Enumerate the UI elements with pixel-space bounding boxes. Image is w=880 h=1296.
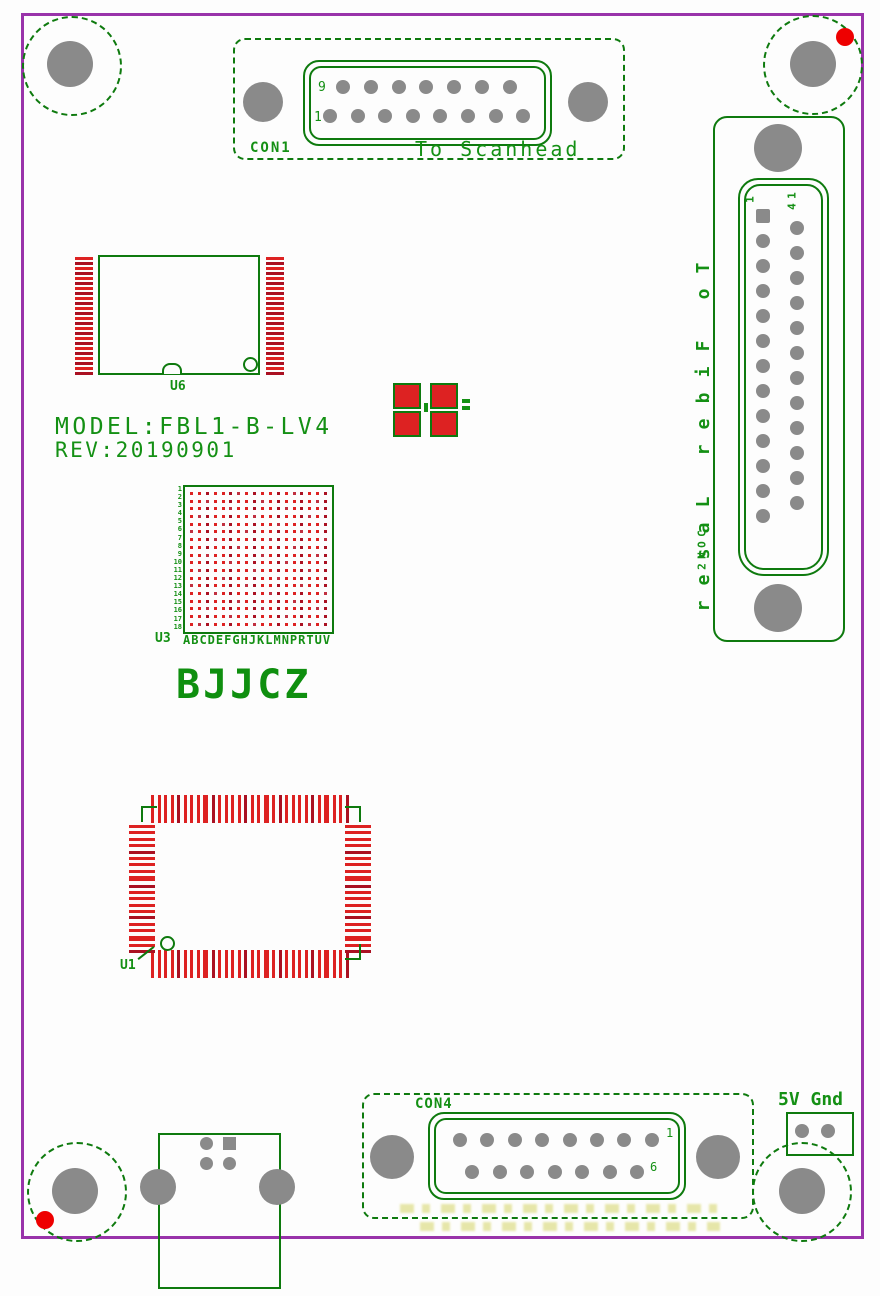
u1-pads-top	[151, 795, 349, 823]
pin-2	[756, 234, 770, 248]
u6pad-10	[266, 302, 284, 305]
ball-20	[198, 500, 201, 503]
u6-pads-right	[266, 257, 284, 375]
pin-3	[508, 1133, 522, 1147]
con2-pin-column-14	[790, 221, 804, 510]
ball-263	[269, 600, 272, 603]
ball-50	[293, 507, 296, 510]
ball-26	[245, 500, 248, 503]
usb-signal-pad	[200, 1137, 213, 1150]
ball-219	[206, 584, 209, 587]
ball-305	[316, 615, 319, 618]
pin-10	[756, 434, 770, 448]
con2-mount-hole-top	[754, 124, 802, 172]
ball-109	[190, 538, 193, 541]
con2-ref-label: CON2	[696, 528, 708, 572]
ball-307	[190, 623, 193, 626]
ball-317	[269, 623, 272, 626]
ball-82	[261, 523, 264, 526]
ball-17	[316, 492, 319, 495]
u6pad-2	[75, 262, 93, 265]
qpadh-14	[129, 910, 155, 913]
ball-278	[245, 607, 248, 610]
ball-175	[285, 561, 288, 564]
ball-79	[237, 523, 240, 526]
ball-34	[308, 500, 311, 503]
ball-93	[206, 530, 209, 533]
ball-59	[222, 515, 225, 518]
ball-312	[229, 623, 232, 626]
ball-5	[222, 492, 225, 495]
u3-ball-grid	[190, 492, 327, 626]
con1-function-label: To Scanhead	[415, 137, 580, 161]
ball-115	[237, 538, 240, 541]
pin-10	[790, 446, 804, 460]
ball-190	[261, 569, 264, 572]
pin-8	[516, 109, 530, 123]
u6pad-14	[75, 322, 93, 325]
pin-12	[756, 484, 770, 498]
ball-169	[237, 561, 240, 564]
ball-55	[190, 515, 193, 518]
ball-30	[277, 500, 280, 503]
qpadv-26	[318, 795, 321, 823]
qpadh-13	[345, 904, 371, 907]
ball-310	[214, 623, 217, 626]
ball-172	[261, 561, 264, 564]
u1-corner-bracket	[141, 806, 157, 822]
pin-8	[790, 396, 804, 410]
ball-8	[245, 492, 248, 495]
ball-173	[269, 561, 272, 564]
ball-261	[253, 600, 256, 603]
model-text: MODEL:FBL1-B-LV4	[55, 414, 333, 440]
ball-259	[237, 600, 240, 603]
qpadh-17	[129, 929, 155, 932]
qpadv-13	[231, 795, 234, 823]
u6pad-17	[266, 337, 284, 340]
qpadh-15	[129, 916, 155, 919]
pin-11	[756, 459, 770, 473]
ball-48	[277, 507, 280, 510]
ball-94	[214, 530, 217, 533]
ball-308	[198, 623, 201, 626]
ball-146	[198, 554, 201, 557]
u1-ref-label: U1	[120, 958, 136, 973]
ball-136	[261, 546, 264, 549]
pin-7	[489, 109, 503, 123]
ball-123	[300, 538, 303, 541]
qpadv-13	[231, 950, 234, 978]
con1-pin-row-bottom	[323, 109, 530, 123]
ball-165	[206, 561, 209, 564]
pin-8	[756, 384, 770, 398]
pin-4	[419, 80, 433, 94]
ball-23	[222, 500, 225, 503]
qpadv-8	[197, 950, 200, 978]
ball-324	[324, 623, 327, 626]
ball-303	[300, 615, 303, 618]
u6pad-6	[266, 282, 284, 285]
ball-304	[308, 615, 311, 618]
pin-5	[433, 109, 447, 123]
ball-144	[324, 546, 327, 549]
ball-315	[253, 623, 256, 626]
ball-180	[324, 561, 327, 564]
ball-154	[261, 554, 264, 557]
ball-295	[237, 615, 240, 618]
ball-4	[214, 492, 217, 495]
con2-mount-hole-bottom	[754, 584, 802, 632]
qpadv-14	[238, 795, 241, 823]
pin-7	[790, 371, 804, 385]
ball-321	[300, 623, 303, 626]
ball-183	[206, 569, 209, 572]
u6-pin1-marker	[243, 357, 258, 372]
ball-231	[300, 584, 303, 587]
ball-112	[214, 538, 217, 541]
pin-2	[351, 109, 365, 123]
qpadv-25	[311, 950, 314, 978]
ball-294	[229, 615, 232, 618]
ball-78	[229, 523, 232, 526]
u6pad-12	[266, 312, 284, 315]
qpadh-9	[345, 876, 371, 881]
usb-signal-pad	[223, 1157, 236, 1170]
ball-285	[300, 607, 303, 610]
pin-1	[336, 80, 350, 94]
ball-124	[308, 538, 311, 541]
ball-223	[237, 584, 240, 587]
ball-2	[198, 492, 201, 495]
pin-3	[790, 271, 804, 285]
ball-176	[293, 561, 296, 564]
ball-62	[245, 515, 248, 518]
ball-182	[198, 569, 201, 572]
mounting-hole-top-right	[763, 15, 863, 115]
power-header-label: 5V Gnd	[778, 1089, 843, 1110]
qpadv-6	[184, 795, 187, 823]
ball-267	[300, 600, 303, 603]
ball-271	[190, 607, 193, 610]
ball-119	[269, 538, 272, 541]
ball-84	[277, 523, 280, 526]
ball-241	[237, 592, 240, 595]
u6pad-23	[75, 367, 93, 370]
u3-column-letters: ABCDEFGHJKLMNPRTUV	[183, 633, 331, 647]
pin-1	[453, 1133, 467, 1147]
ball-256	[214, 600, 217, 603]
qpadh-7	[129, 863, 155, 866]
ball-28	[261, 500, 264, 503]
ball-298	[261, 615, 264, 618]
qpadh-5	[345, 851, 371, 854]
ball-200	[198, 577, 201, 580]
u6pad-14	[266, 322, 284, 325]
pin-5	[575, 1165, 589, 1179]
qpadv-29	[339, 950, 342, 978]
ball-288	[324, 607, 327, 610]
ball-318	[277, 623, 280, 626]
qpadv-15	[244, 795, 247, 823]
ball-88	[308, 523, 311, 526]
qpadh-13	[129, 904, 155, 907]
ball-22	[214, 500, 217, 503]
qpadh-10	[345, 885, 371, 888]
u6pad-5	[75, 277, 93, 280]
ball-170	[245, 561, 248, 564]
qpadv-11	[218, 950, 221, 978]
ball-29	[269, 500, 272, 503]
pin-1	[323, 109, 337, 123]
con4-dsub-body	[428, 1112, 686, 1200]
ball-284	[293, 607, 296, 610]
ball-71	[316, 515, 319, 518]
u6-ref-label: U6	[170, 379, 186, 394]
ball-138	[277, 546, 280, 549]
ball-185	[222, 569, 225, 572]
qpadv-26	[318, 950, 321, 978]
u1-corner-bracket	[345, 944, 361, 960]
ball-179	[316, 561, 319, 564]
pin-2	[364, 80, 378, 94]
ball-243	[253, 592, 256, 595]
qpadv-12	[225, 795, 228, 823]
ball-157	[285, 554, 288, 557]
ball-58	[214, 515, 217, 518]
u6pad-20	[75, 352, 93, 355]
pin-2	[493, 1165, 507, 1179]
u1-pin1-marker	[160, 936, 175, 951]
power-header: 5V Gnd	[778, 1089, 858, 1159]
qpadv-21	[285, 950, 288, 978]
ball-147	[206, 554, 209, 557]
usb-mount-post-left	[140, 1169, 176, 1205]
u6pad-3	[75, 267, 93, 270]
qpadh-12	[129, 897, 155, 900]
ball-252	[324, 592, 327, 595]
ball-3	[206, 492, 209, 495]
pin-13	[756, 509, 770, 523]
ball-198	[324, 569, 327, 572]
ball-111	[206, 538, 209, 541]
ball-235	[190, 592, 193, 595]
u6pad-5	[266, 277, 284, 280]
ball-229	[285, 584, 288, 587]
ball-197	[316, 569, 319, 572]
ball-152	[245, 554, 248, 557]
ball-95	[222, 530, 225, 533]
qpadh-4	[129, 844, 155, 847]
con2-pin-column-1	[756, 209, 770, 523]
u6pad-16	[266, 332, 284, 335]
ball-117	[253, 538, 256, 541]
ball-167	[222, 561, 225, 564]
passive-components	[393, 383, 473, 439]
ball-120	[277, 538, 280, 541]
pin-12	[790, 496, 804, 510]
con4-mount-hole-left	[370, 1135, 414, 1179]
ball-40	[214, 507, 217, 510]
ball-207	[253, 577, 256, 580]
qpadv-21	[285, 795, 288, 823]
qpadh-18	[345, 936, 371, 941]
qpadh-6	[129, 857, 155, 860]
ball-275	[222, 607, 225, 610]
pin-2	[790, 246, 804, 260]
ball-14	[293, 492, 296, 495]
ball-309	[206, 623, 209, 626]
ball-287	[316, 607, 319, 610]
con2-pin1-label: 1	[744, 194, 756, 205]
u6pad-18	[75, 342, 93, 345]
ball-220	[214, 584, 217, 587]
u6pad-10	[75, 302, 93, 305]
ball-203	[222, 577, 225, 580]
u6pad-22	[75, 362, 93, 365]
pin-3	[392, 80, 406, 94]
ball-108	[324, 530, 327, 533]
qpadh-2	[345, 831, 371, 834]
ball-46	[261, 507, 264, 510]
ball-268	[308, 600, 311, 603]
qpadh-11	[129, 891, 155, 894]
u6pad-1	[266, 257, 284, 260]
ball-13	[285, 492, 288, 495]
u6pad-7	[75, 287, 93, 290]
qpadh-3	[345, 838, 371, 841]
con4-pin1-label: 1	[666, 1126, 673, 1140]
con1-pin1-label: 1	[314, 110, 322, 125]
ball-191	[269, 569, 272, 572]
con1-pin9-label: 9	[318, 80, 326, 95]
ball-282	[277, 607, 280, 610]
pin-5	[790, 321, 804, 335]
pin-3	[756, 259, 770, 273]
qpadh-9	[129, 876, 155, 881]
ball-291	[206, 615, 209, 618]
qpadv-3	[164, 795, 167, 823]
qpadh-16	[129, 923, 155, 926]
ball-204	[229, 577, 232, 580]
ball-133	[237, 546, 240, 549]
u6pad-21	[266, 357, 284, 360]
ball-66	[277, 515, 280, 518]
qpadh-10	[129, 885, 155, 888]
u6-notch	[162, 363, 182, 374]
ball-266	[293, 600, 296, 603]
ball-45	[253, 507, 256, 510]
pin-3	[520, 1165, 534, 1179]
ball-164	[198, 561, 201, 564]
usb-body	[158, 1133, 281, 1289]
ball-226	[261, 584, 264, 587]
ball-255	[206, 600, 209, 603]
qpadv-3	[164, 950, 167, 978]
pin-6	[756, 334, 770, 348]
ball-106	[308, 530, 311, 533]
u6pad-24	[75, 372, 93, 375]
ball-244	[261, 592, 264, 595]
ball-87	[300, 523, 303, 526]
pin-1	[756, 209, 770, 223]
ball-274	[214, 607, 217, 610]
qpadv-24	[305, 950, 308, 978]
qpadv-25	[311, 795, 314, 823]
ball-98	[245, 530, 248, 533]
ball-145	[190, 554, 193, 557]
ball-85	[285, 523, 288, 526]
u6pad-15	[266, 327, 284, 330]
u6pad-4	[75, 272, 93, 275]
faded-silkscreen-text	[400, 1204, 720, 1213]
pin-4	[535, 1133, 549, 1147]
u6pad-21	[75, 357, 93, 360]
ball-314	[245, 623, 248, 626]
con2-dsub-body	[738, 178, 829, 576]
qpadv-17	[257, 950, 260, 978]
component-label-mark	[424, 403, 428, 412]
qpadv-18	[264, 950, 269, 978]
con4-pin-row-top	[453, 1133, 659, 1147]
ball-236	[198, 592, 201, 595]
ball-43	[237, 507, 240, 510]
ball-245	[269, 592, 272, 595]
ball-213	[300, 577, 303, 580]
con4-connector: CON4 1 6	[362, 1093, 754, 1219]
ball-141	[300, 546, 303, 549]
ball-212	[293, 577, 296, 580]
pin-7	[756, 359, 770, 373]
ball-216	[324, 577, 327, 580]
ball-77	[222, 523, 225, 526]
ball-320	[293, 623, 296, 626]
ball-188	[245, 569, 248, 572]
ball-168	[229, 561, 232, 564]
ball-127	[190, 546, 193, 549]
ball-83	[269, 523, 272, 526]
ball-181	[190, 569, 193, 572]
u6pad-19	[75, 347, 93, 350]
ball-57	[206, 515, 209, 518]
ball-296	[245, 615, 248, 618]
ball-232	[308, 584, 311, 587]
qpadv-10	[212, 950, 215, 978]
ball-233	[316, 584, 319, 587]
ball-286	[308, 607, 311, 610]
u1-chip: U1	[118, 790, 378, 985]
ball-247	[285, 592, 288, 595]
ball-41	[222, 507, 225, 510]
qpadh-3	[129, 838, 155, 841]
qpadv-28	[333, 950, 336, 978]
ball-125	[316, 538, 319, 541]
u3-ref-label: U3	[155, 631, 171, 646]
qpadh-8	[345, 870, 371, 873]
ball-113	[222, 538, 225, 541]
qpadv-11	[218, 795, 221, 823]
ball-159	[300, 554, 303, 557]
ball-319	[285, 623, 288, 626]
ball-193	[285, 569, 288, 572]
ball-148	[214, 554, 217, 557]
usb-signal-pad	[200, 1157, 213, 1170]
pin-1	[465, 1165, 479, 1179]
u6pad-24	[266, 372, 284, 375]
ball-49	[285, 507, 288, 510]
qpadv-22	[292, 950, 295, 978]
u6pad-13	[266, 317, 284, 320]
